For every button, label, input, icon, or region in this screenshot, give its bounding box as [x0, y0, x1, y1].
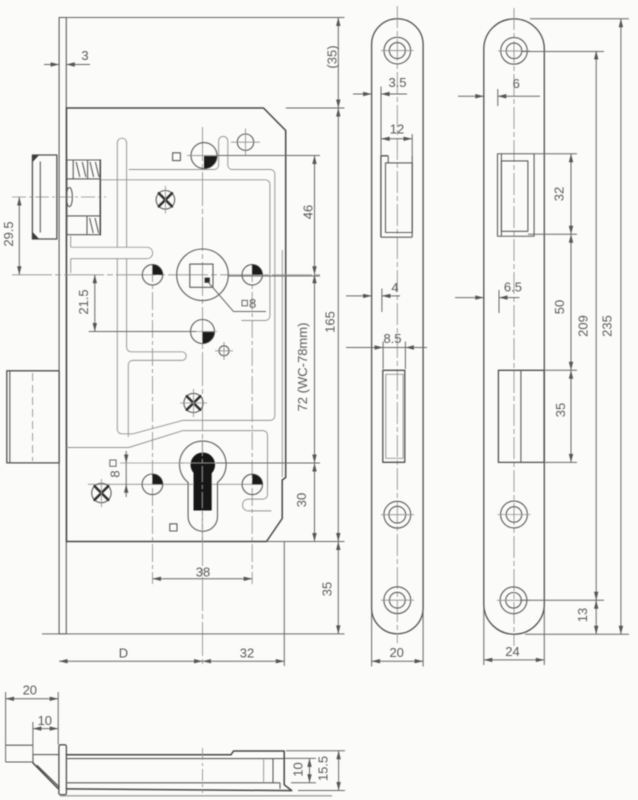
svg-text:(35): (35): [325, 45, 340, 68]
svg-text:10: 10: [38, 713, 52, 728]
svg-text:29.5: 29.5: [1, 221, 16, 246]
svg-text:30: 30: [294, 493, 309, 507]
svg-text:12: 12: [390, 122, 404, 137]
svg-text:20: 20: [23, 683, 37, 698]
svg-text:15.5: 15.5: [316, 756, 331, 781]
svg-text:20: 20: [389, 645, 403, 660]
svg-text:3: 3: [81, 48, 88, 63]
svg-text:38: 38: [196, 565, 210, 580]
svg-text:209: 209: [576, 315, 591, 337]
svg-text:21.5: 21.5: [76, 289, 91, 314]
svg-text:46: 46: [301, 205, 316, 219]
svg-text:10: 10: [291, 762, 306, 776]
svg-text:8.5: 8.5: [383, 331, 401, 346]
svg-text:235: 235: [600, 315, 615, 337]
svg-text:6.5: 6.5: [504, 280, 522, 295]
svg-text:D: D: [119, 646, 128, 661]
svg-text:35: 35: [320, 582, 335, 596]
svg-text:32: 32: [552, 187, 567, 201]
svg-text:8: 8: [108, 470, 123, 477]
svg-text:8: 8: [249, 296, 256, 311]
svg-text:13: 13: [575, 608, 590, 622]
svg-text:72 (WC-78mm): 72 (WC-78mm): [295, 323, 310, 412]
svg-text:50: 50: [552, 300, 567, 314]
svg-text:3.5: 3.5: [388, 75, 406, 90]
svg-text:35: 35: [553, 403, 568, 417]
svg-text:4: 4: [391, 280, 398, 295]
svg-text:32: 32: [240, 646, 254, 661]
svg-text:24: 24: [505, 644, 519, 659]
svg-text:6: 6: [513, 76, 520, 91]
svg-text:165: 165: [323, 311, 338, 333]
